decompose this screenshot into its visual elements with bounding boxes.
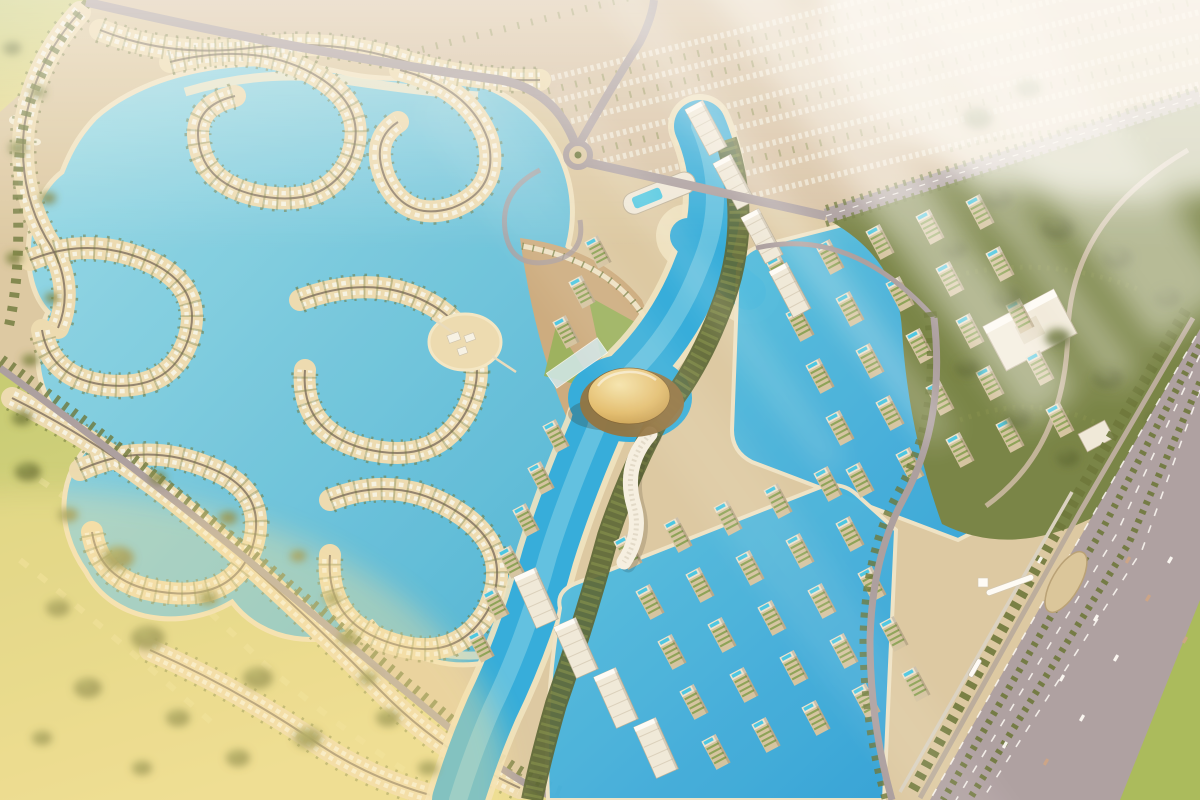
- atmosphere: [0, 0, 1200, 800]
- warm-tint: [0, 0, 1200, 800]
- aerial-masterplan-render: [0, 0, 1200, 800]
